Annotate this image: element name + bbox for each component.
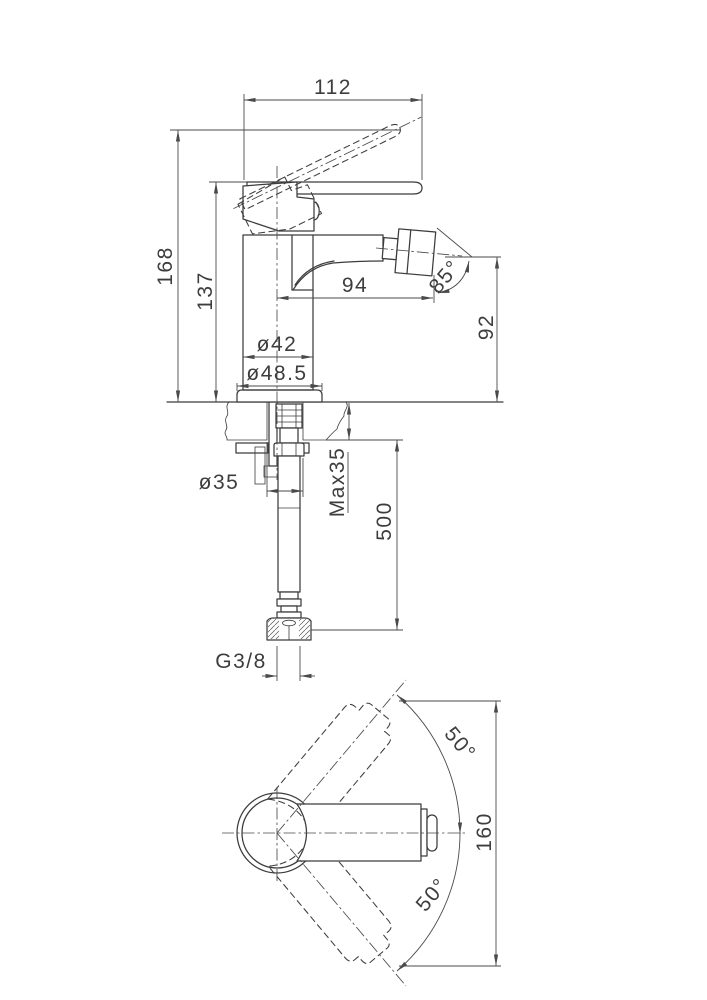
dim-500-label: 500: [373, 501, 396, 541]
handle-axis-centerline: [233, 117, 421, 209]
dim-112: 112: [244, 76, 422, 180]
dim-160-label: 160: [473, 812, 496, 852]
base-flange: [237, 390, 322, 402]
dim-d35-label: ø35: [199, 471, 240, 494]
dim-137-label: 137: [194, 271, 217, 311]
handle-lever: [243, 182, 422, 231]
dim-max35: Max35: [326, 403, 349, 517]
end-ferrule-1: [280, 592, 298, 599]
dim-d42: ø42: [243, 333, 313, 357]
braided-hose: [278, 456, 300, 592]
mounting-deck: [167, 402, 503, 440]
dim-168-label: 168: [154, 246, 177, 286]
dim-max35-label: Max35: [326, 447, 349, 518]
aerator: [381, 228, 436, 276]
dim-g38: G3/8: [215, 646, 315, 681]
deck-slab-right: [303, 402, 347, 440]
nut-hatch-right: [299, 619, 310, 639]
faucet-technical-drawing: 112 168 137 94 85° 9: [0, 0, 707, 1000]
top-view: 50° 50° 160: [222, 680, 501, 986]
dim-500: 500: [311, 440, 403, 630]
end-ferrule-3: [281, 606, 297, 612]
dim-112-label: 112: [314, 76, 352, 99]
dim-137: 137: [194, 182, 247, 402]
end-ferrule-4: [277, 612, 301, 618]
handle-end-plate: [421, 809, 427, 856]
dim-d48-5-label: ø48.5: [246, 362, 307, 385]
technical-drawing-page: 112 168 137 94 85° 9: [0, 0, 707, 1000]
dim-50deg-upper-label: 50°: [440, 723, 481, 766]
angle-reference-line: [437, 228, 472, 257]
hose-nut-upper: [274, 443, 304, 456]
dim-d42-label: ø42: [257, 333, 298, 356]
side-view: 112 168 137 94 85° 9: [154, 76, 503, 681]
handle-plan: [297, 804, 421, 861]
dim-d48-5: ø48.5: [237, 362, 322, 391]
nut-hatch-left: [268, 619, 279, 639]
handle-raised-position: [231, 112, 440, 248]
deck-slab-left: [225, 402, 267, 440]
aerator-body: [395, 229, 436, 276]
dim-g38-label: G3/8: [215, 650, 267, 673]
end-ferrule-2: [277, 599, 301, 606]
dim-50deg-lower-label: 50°: [412, 874, 453, 917]
spout-under-curve-outer: [293, 261, 383, 290]
spout-under-curve-inner: [295, 261, 334, 285]
dim-92-label: 92: [475, 314, 498, 340]
hose-neck: [280, 428, 298, 443]
dim-94-label: 94: [342, 274, 368, 297]
horseshoe-washer: [236, 443, 268, 453]
